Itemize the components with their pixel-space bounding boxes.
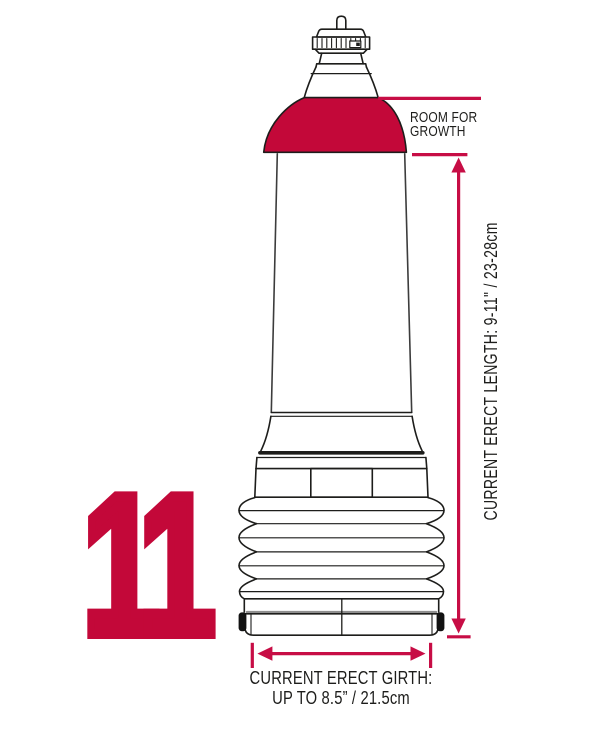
girth-line1: CURRENT ERECT GIRTH: [239,668,444,688]
length-measure-arrow [378,98,481,636]
figure-number: 11 [82,466,202,666]
pump-bellows [239,498,444,599]
pump-base [239,599,445,635]
girth-label: CURRENT ERECT GIRTH: UP TO 8.5” / 21.5cm [239,668,444,708]
room-for-growth-label: ROOM FOR GROWTH [410,111,477,138]
length-label: CURRENT ERECT LENGTH: 9-11" / 23-28cm [480,262,502,521]
product-diagram: 11 ROOM FOR GROWTH CURRENT ERECT LENGTH:… [0,0,603,732]
room-for-growth-zone [264,98,407,153]
pump-cylinder [271,154,411,413]
girth-measure-arrow [252,643,430,668]
girth-line2: UP TO 8.5” / 21.5cm [239,688,444,708]
pump-collar [255,413,428,498]
pump-valve [304,16,378,97]
room-for-growth-line2: GROWTH [410,125,477,139]
